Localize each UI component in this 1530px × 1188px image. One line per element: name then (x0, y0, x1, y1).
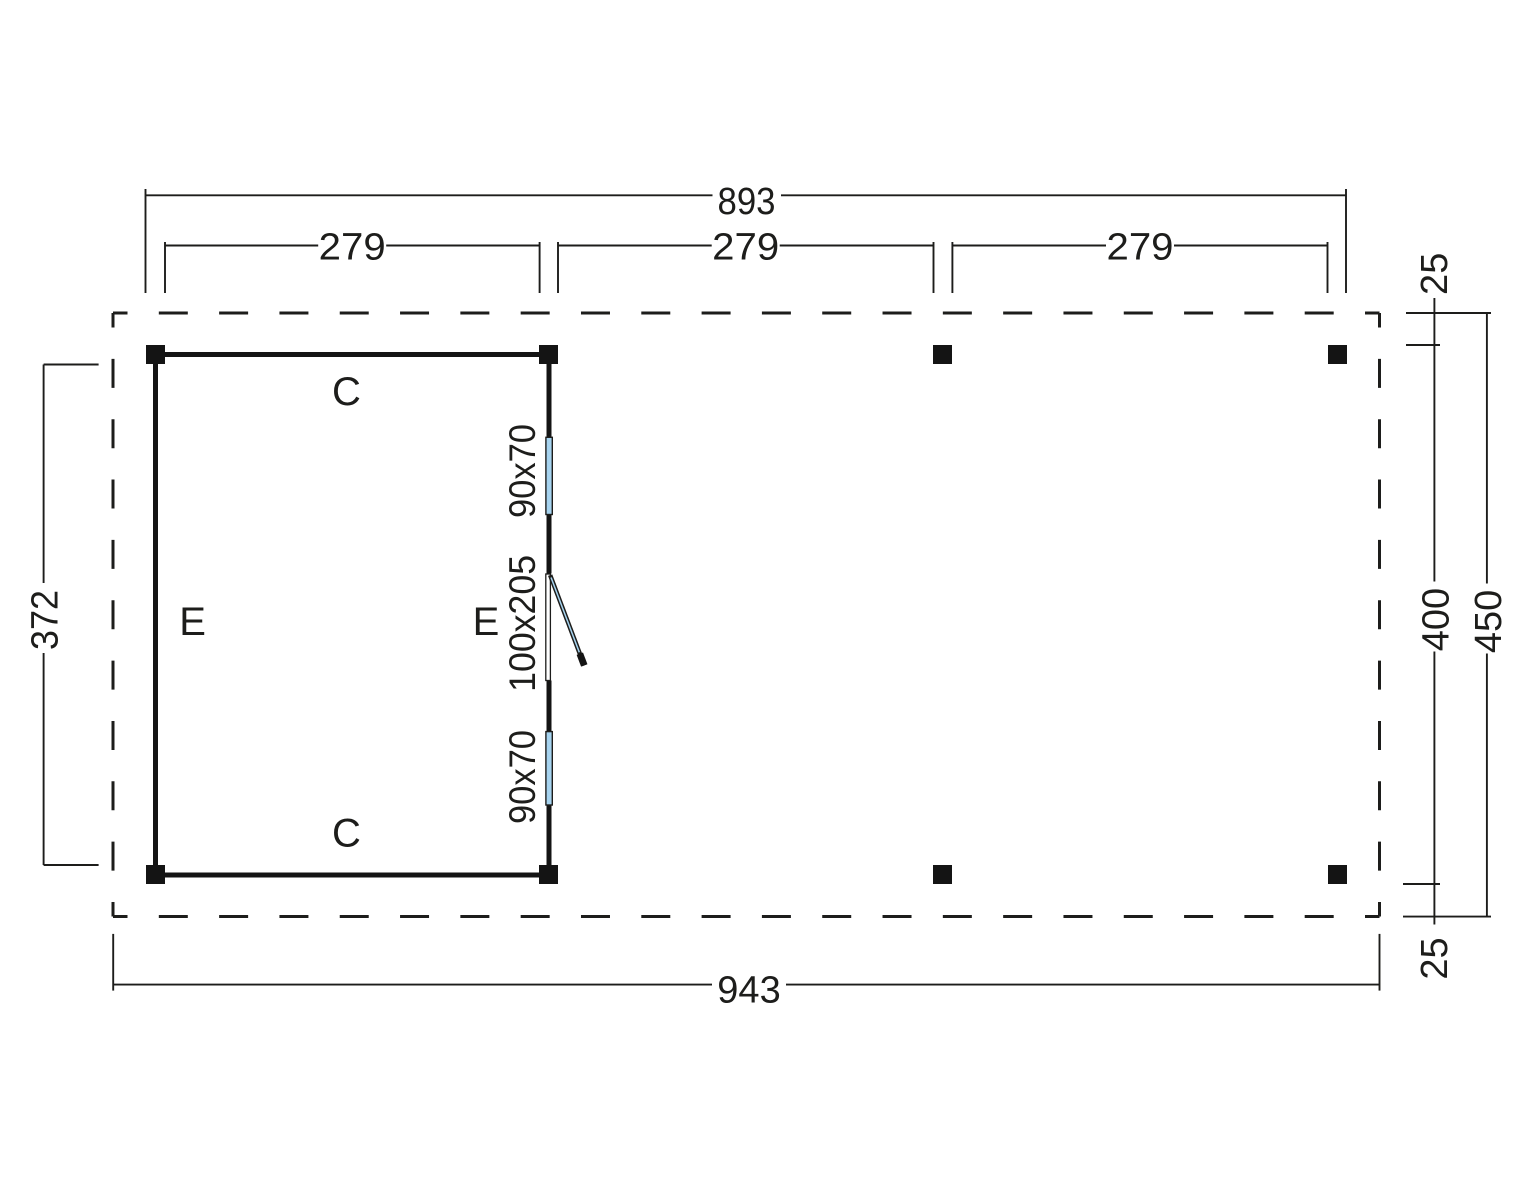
svg-text:100x205: 100x205 (502, 555, 543, 692)
svg-text:25: 25 (1414, 937, 1456, 979)
svg-text:279: 279 (319, 227, 386, 269)
svg-text:E: E (179, 600, 206, 644)
svg-text:25: 25 (1414, 253, 1456, 295)
svg-text:893: 893 (718, 181, 776, 223)
svg-text:C: C (332, 811, 361, 855)
svg-text:C: C (332, 370, 361, 414)
svg-text:450: 450 (1468, 590, 1510, 653)
svg-text:372: 372 (24, 590, 66, 650)
svg-text:943: 943 (717, 969, 780, 1011)
svg-text:E: E (473, 600, 500, 644)
svg-text:400: 400 (1416, 588, 1458, 651)
svg-text:279: 279 (1107, 227, 1174, 269)
svg-text:90x70: 90x70 (502, 730, 543, 824)
svg-text:90x70: 90x70 (502, 424, 543, 518)
svg-text:279: 279 (712, 227, 779, 269)
